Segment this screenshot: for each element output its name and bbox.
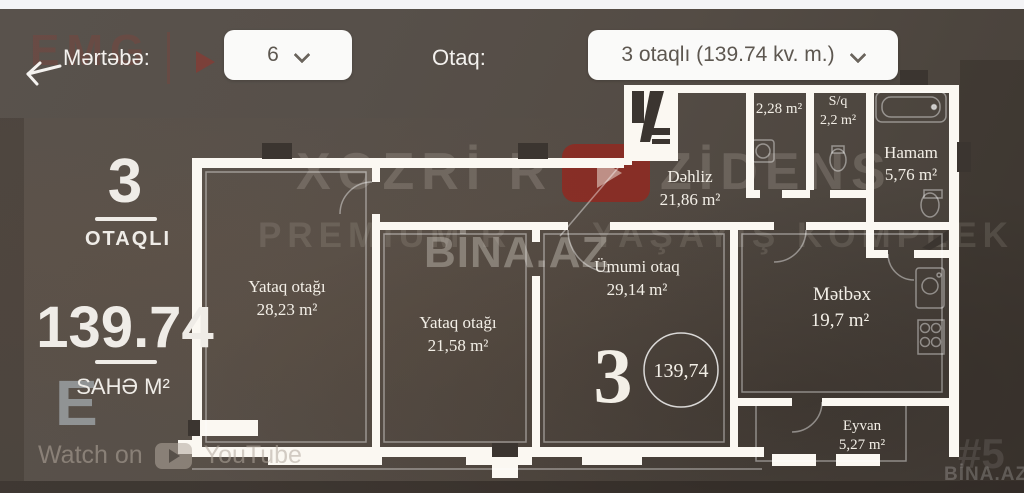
watch-on-label: Watch on xyxy=(38,441,143,470)
room-label-living-name: Ümumi otaq xyxy=(594,257,680,276)
room-label-hall-area: 21,86 m² xyxy=(660,190,721,209)
room-label-bath-name: Hamam xyxy=(884,143,938,162)
room-label-bedroom1-name: Yataq otağı xyxy=(248,277,325,296)
room-label-kitchen-name: Mətbəx xyxy=(813,284,872,305)
watch-on-youtube-link[interactable]: Watch on YouTube xyxy=(38,441,302,470)
room-label-bedroom2-area: 21,58 m² xyxy=(428,336,489,355)
floor-label: Mərtəbə: xyxy=(63,45,150,71)
back-button[interactable] xyxy=(20,50,64,94)
room-label-bath-area: 5,76 m² xyxy=(885,165,937,184)
bina-az-corner-watermark: BİNA.AZ xyxy=(944,464,1024,486)
room-dropdown-value: 3 otaqlı (139.74 kv. m.) xyxy=(621,43,834,67)
screenshot-root: EMG XƏZRİ R ZİDENS PREMIUM R YAŞAYIŞ KOM… xyxy=(0,0,1024,493)
room-label: Otaq: xyxy=(432,45,486,71)
room-label-storage-area: 2,28 m² xyxy=(756,101,803,117)
room-label-living-area: 29,14 m² xyxy=(607,280,668,299)
summary-area-value: 139.74 xyxy=(12,294,238,361)
badge-rooms-number: 3 xyxy=(594,332,633,419)
top-strip xyxy=(0,0,1024,9)
chevron-down-icon xyxy=(295,45,309,59)
summary-rooms-number: 3 xyxy=(85,146,165,217)
floor-dropdown[interactable]: 6 xyxy=(224,30,352,80)
summary-area-caption: SAHƏ M² xyxy=(40,374,206,400)
room-label-hall-name: Dəhliz xyxy=(667,167,713,186)
summary-divider-2 xyxy=(95,360,157,364)
room-dropdown[interactable]: 3 otaqlı (139.74 kv. m.) xyxy=(588,30,898,80)
youtube-icon xyxy=(155,443,192,469)
room-label-wc-name: S/q xyxy=(829,94,848,109)
room-label-balcony-area: 5,27 m² xyxy=(839,437,886,453)
summary-rooms-caption: OTAQLI xyxy=(85,228,165,251)
plan-badge: 3 139,74 xyxy=(594,332,719,419)
floor-dropdown-value: 6 xyxy=(267,43,279,67)
youtube-label: YouTube xyxy=(204,441,302,470)
badge-total-area: 139,74 xyxy=(654,360,709,382)
summary-divider xyxy=(95,217,157,221)
room-label-bedroom1-area: 28,23 m² xyxy=(257,300,318,319)
room-label-kitchen-area: 19,7 m² xyxy=(811,310,870,331)
room-label-bedroom2-name: Yataq otağı xyxy=(419,313,496,332)
room-label-wc-area: 2,2 m² xyxy=(820,113,856,128)
chevron-down-icon xyxy=(851,45,865,59)
room-label-balcony-name: Eyvan xyxy=(843,418,882,434)
